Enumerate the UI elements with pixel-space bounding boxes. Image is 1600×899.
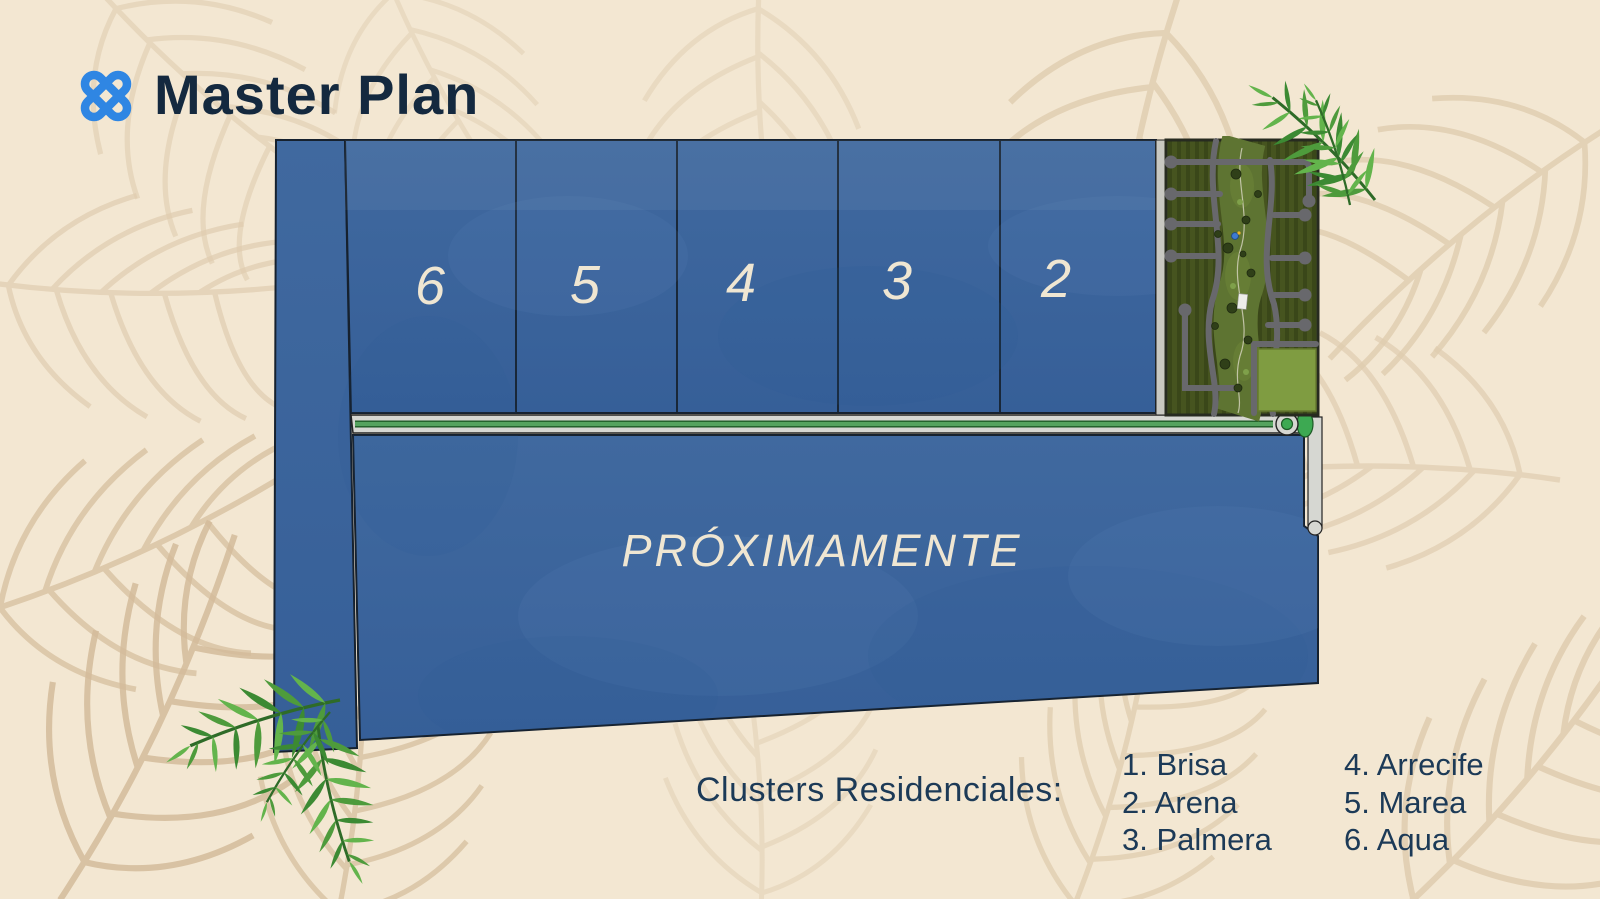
header: Master Plan (0, 0, 700, 150)
legend-column-2: 4. Arrecife 5. Marea 6. Aqua (1344, 746, 1484, 859)
cluster-1-aerial (1156, 140, 1318, 415)
clubhouse-building (1237, 294, 1248, 310)
legend-item-brisa: 1. Brisa (1122, 746, 1272, 784)
open-field (1258, 349, 1316, 411)
parcel-6-label: 6 (415, 256, 446, 316)
coming-soon-label: PRÓXIMAMENTE (621, 525, 1022, 576)
parcel-5-label: 5 (570, 255, 601, 315)
parcel-2-label: 2 (1040, 249, 1071, 309)
master-plan-map: 6 5 4 3 2 PRÓXIMAMENTE (268, 136, 1330, 764)
parcel-4-label: 4 (726, 253, 756, 313)
master-plan-page: 6 5 4 3 2 PRÓXIMAMENTE (0, 0, 1600, 899)
legend-item-aqua: 6. Aqua (1344, 821, 1484, 859)
page-title: Master Plan (154, 62, 479, 127)
legend-column-1: 1. Brisa 2. Arena 3. Palmera (1122, 746, 1272, 859)
brand-x-knot-logo-icon (74, 64, 138, 128)
legend-item-arena: 2. Arena (1122, 784, 1272, 822)
legend-item-palmera: 3. Palmera (1122, 821, 1272, 859)
playground-marker-dot (1237, 231, 1240, 234)
legend-item-marea: 5. Marea (1344, 784, 1484, 822)
legend-item-arrecife: 4. Arrecife (1344, 746, 1484, 784)
parcel-3-label: 3 (882, 251, 912, 311)
legend-title: Clusters Residenciales: (696, 771, 1063, 810)
playground-marker (1232, 233, 1239, 240)
